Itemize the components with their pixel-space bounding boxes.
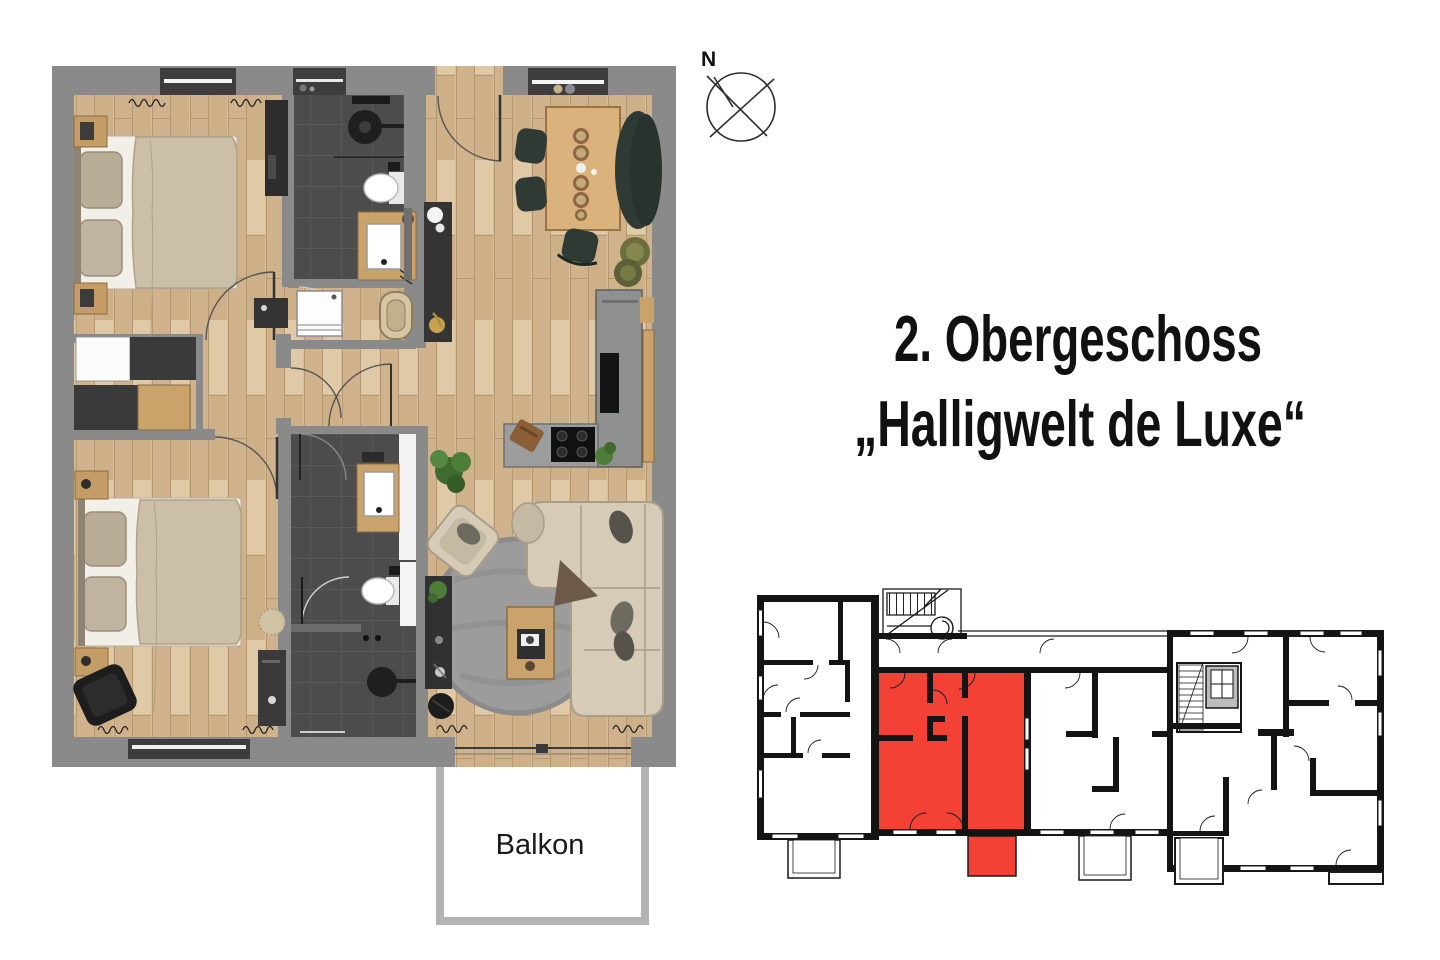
svg-text:N: N	[701, 48, 716, 71]
svg-text:„Halligwelt de Luxe“: „Halligwelt de Luxe“	[854, 387, 1306, 460]
svg-text:Balkon: Balkon	[496, 829, 585, 861]
svg-text:2. Obergeschoss: 2. Obergeschoss	[894, 302, 1262, 375]
